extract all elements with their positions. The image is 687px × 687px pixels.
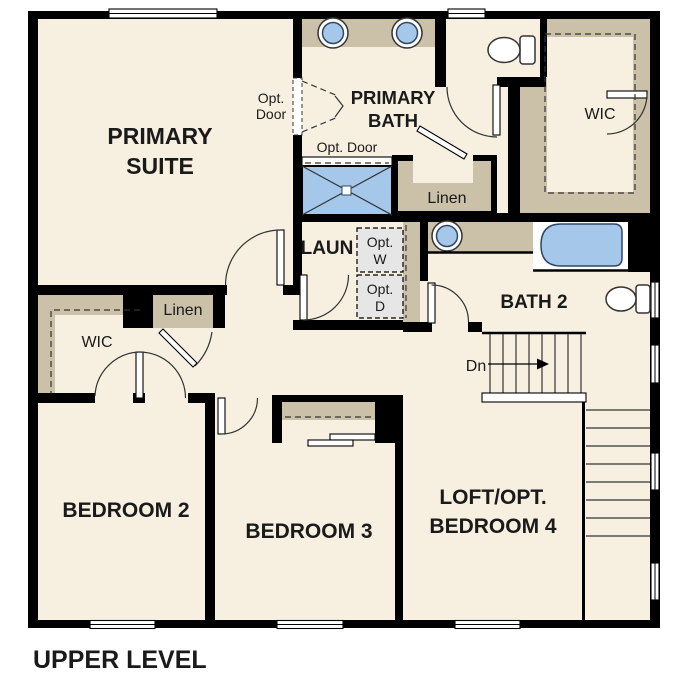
linen-hall-label: Linen xyxy=(163,302,202,319)
primary-suite-label-1: PRIMARY xyxy=(107,123,212,149)
opt-washer-label-1: Opt. xyxy=(367,234,393,250)
wic-hall-shelf-left xyxy=(38,315,55,397)
toilet-icon xyxy=(488,36,535,64)
bedroom3-closet-door xyxy=(308,440,353,446)
sink-basin xyxy=(397,23,418,44)
laundry-label: LAUN xyxy=(301,238,354,259)
stairs-down-label: Dn xyxy=(466,358,486,375)
primary-bath-label-1: PRIMARY xyxy=(351,87,436,108)
bedroom2-label: BEDROOM 2 xyxy=(62,499,189,522)
bedroom3-closet-door xyxy=(330,434,375,440)
primary-suite-door xyxy=(277,230,284,285)
wic-hall-label: WIC xyxy=(81,334,112,351)
primary-suite-label-2: SUITE xyxy=(126,153,194,179)
floor-plan-page: PRIMARY SUITE PRIMARY BATH Opt. Door Opt… xyxy=(0,0,687,687)
opt-door-suite-label-2: Door xyxy=(256,106,287,122)
opt-dryer-label-2: D xyxy=(375,298,385,314)
loft-label-1: LOFT/OPT. xyxy=(439,486,546,509)
loft-label-2: BEDROOM 4 xyxy=(429,515,557,538)
shower-icon xyxy=(302,157,392,215)
opt-door-shower-label: Opt. Door xyxy=(317,139,378,155)
bath2-label: BATH 2 xyxy=(500,292,567,313)
wic-primary-label: WIC xyxy=(584,106,615,123)
opt-door-suite-label-1: Opt. xyxy=(258,90,284,106)
opt-washer-label-2: W xyxy=(373,251,387,267)
opt-dryer-label-1: Opt. xyxy=(367,281,393,297)
bath2-door xyxy=(428,283,435,323)
laundry-door xyxy=(300,275,307,320)
floor-plan-drawing: PRIMARY SUITE PRIMARY BATH Opt. Door Opt… xyxy=(0,0,687,687)
water-closet-door xyxy=(493,85,500,135)
page-title: UPPER LEVEL xyxy=(33,646,207,674)
primary-bath-label-2: BATH xyxy=(368,110,418,131)
sink-basin xyxy=(323,23,344,44)
wic-primary-door xyxy=(607,91,647,98)
stair-rail xyxy=(482,393,586,402)
bedroom3-label: BEDROOM 3 xyxy=(245,520,372,543)
bedroom3-door xyxy=(218,398,225,434)
bathtub-icon xyxy=(533,222,628,272)
toilet-icon xyxy=(606,285,650,313)
linen-bath-label: Linen xyxy=(427,190,466,207)
wic-hall-door xyxy=(136,352,143,398)
sink-basin xyxy=(437,226,458,247)
